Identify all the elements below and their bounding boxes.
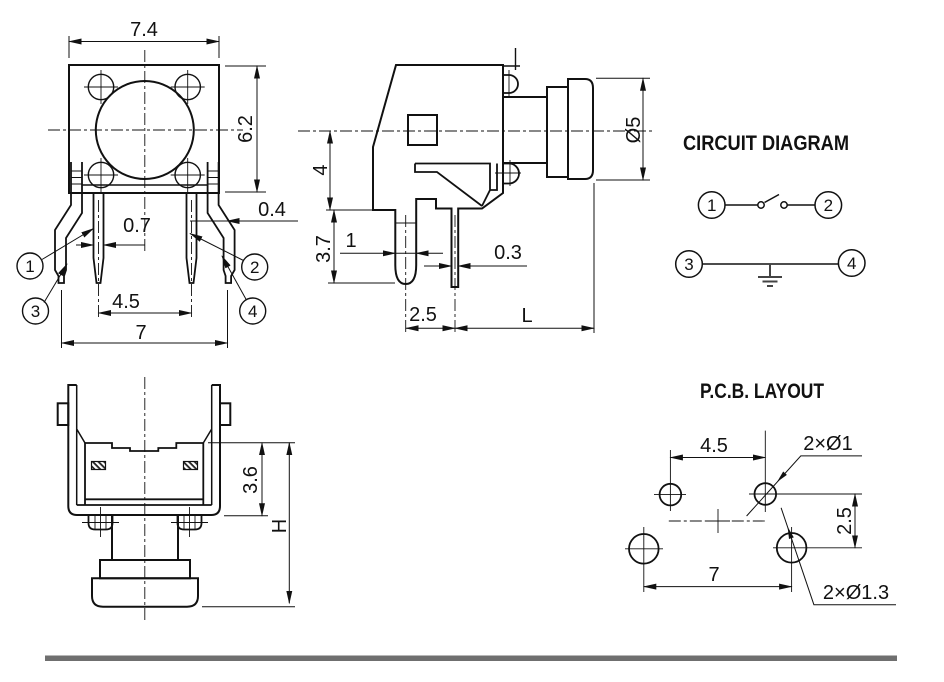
side-dim-center-to-base [326,131,373,210]
front-view-body [69,65,219,193]
side-dim-pin-length-label: 3.7 [313,235,335,263]
front-dim-leg-thickness-label: 0.4 [258,199,286,221]
front-dim-pin-width-label: 0.7 [123,215,151,237]
callout-4: 4 [248,302,257,321]
callout-2: 2 [250,258,259,277]
circuit-diagram: CIRCUIT DIAGRAM 1 2 3 4 [676,132,865,286]
pcb-dim-top-hole-spacing-label: 4.5 [700,435,728,457]
bottom-separator-bar [45,656,897,662]
callout-3: 3 [31,302,40,321]
front-dim-height-label: 6.2 [235,115,257,143]
side-dim-button-diameter-label: Ø5 [623,117,645,144]
side-dim-post-width-label: 0.3 [494,242,522,264]
terminal-1: 1 [707,196,716,215]
pcb-dim-row-spacing-label: 2.5 [834,507,856,535]
side-view-plunger [504,79,593,179]
switch-drawing-canvas: 7.4 6.2 0.7 0.4 4.5 7 [0,0,944,682]
front-dim-inner-pin-spacing-label: 4.5 [112,291,140,313]
terminal-2: 2 [824,196,833,215]
side-dim-center-to-base-label: 4 [310,164,332,175]
switch-symbol [698,192,841,219]
callout-1: 1 [25,257,34,276]
terminal-3: 3 [684,255,693,274]
bottom-dim-inner-depth-label: 3.6 [240,466,262,494]
circuit-diagram-title: CIRCUIT DIAGRAM [683,132,849,155]
front-dim-width-label: 7.4 [130,19,158,41]
bottom-view: 3.6 H [58,377,295,620]
side-view-square-hole [408,115,437,145]
pcb-layout-title: P.C.B. LAYOUT [700,380,824,403]
pcb-label-small-holes: 2×Ø1 [803,433,852,455]
technical-drawing-page: 7.4 6.2 0.7 0.4 4.5 7 [0,0,944,682]
side-dim-pin-length [328,210,395,283]
side-view: 4 3.7 1 0.3 2.5 L Ø5 [298,48,652,333]
pcb-layout: P.C.B. LAYOUT 4.5 7 2.5 2×Ø1 [625,380,896,605]
pcb-label-large-holes: 2×Ø1.3 [823,582,889,604]
pcb-leader-small-holes [747,456,862,516]
ground-icon [758,264,782,286]
bottom-view-inner-body [77,443,212,505]
pcb-dim-bottom-hole-spacing-label: 7 [708,564,719,586]
bottom-view-bracket [58,385,231,515]
side-view-pegs [495,48,521,186]
side-dim-pin-offset-label: 2.5 [409,304,437,326]
bottom-dim-total-height-label: H [269,519,291,533]
side-dim-shaft-length-label: L [521,305,532,327]
terminal-4: 4 [847,254,856,273]
side-dim-pin-width-label: 1 [345,230,356,252]
front-view: 7.4 6.2 0.7 0.4 4.5 7 [17,19,298,348]
ground-branch [676,250,865,286]
front-dim-outer-pin-spacing-label: 7 [135,322,146,344]
